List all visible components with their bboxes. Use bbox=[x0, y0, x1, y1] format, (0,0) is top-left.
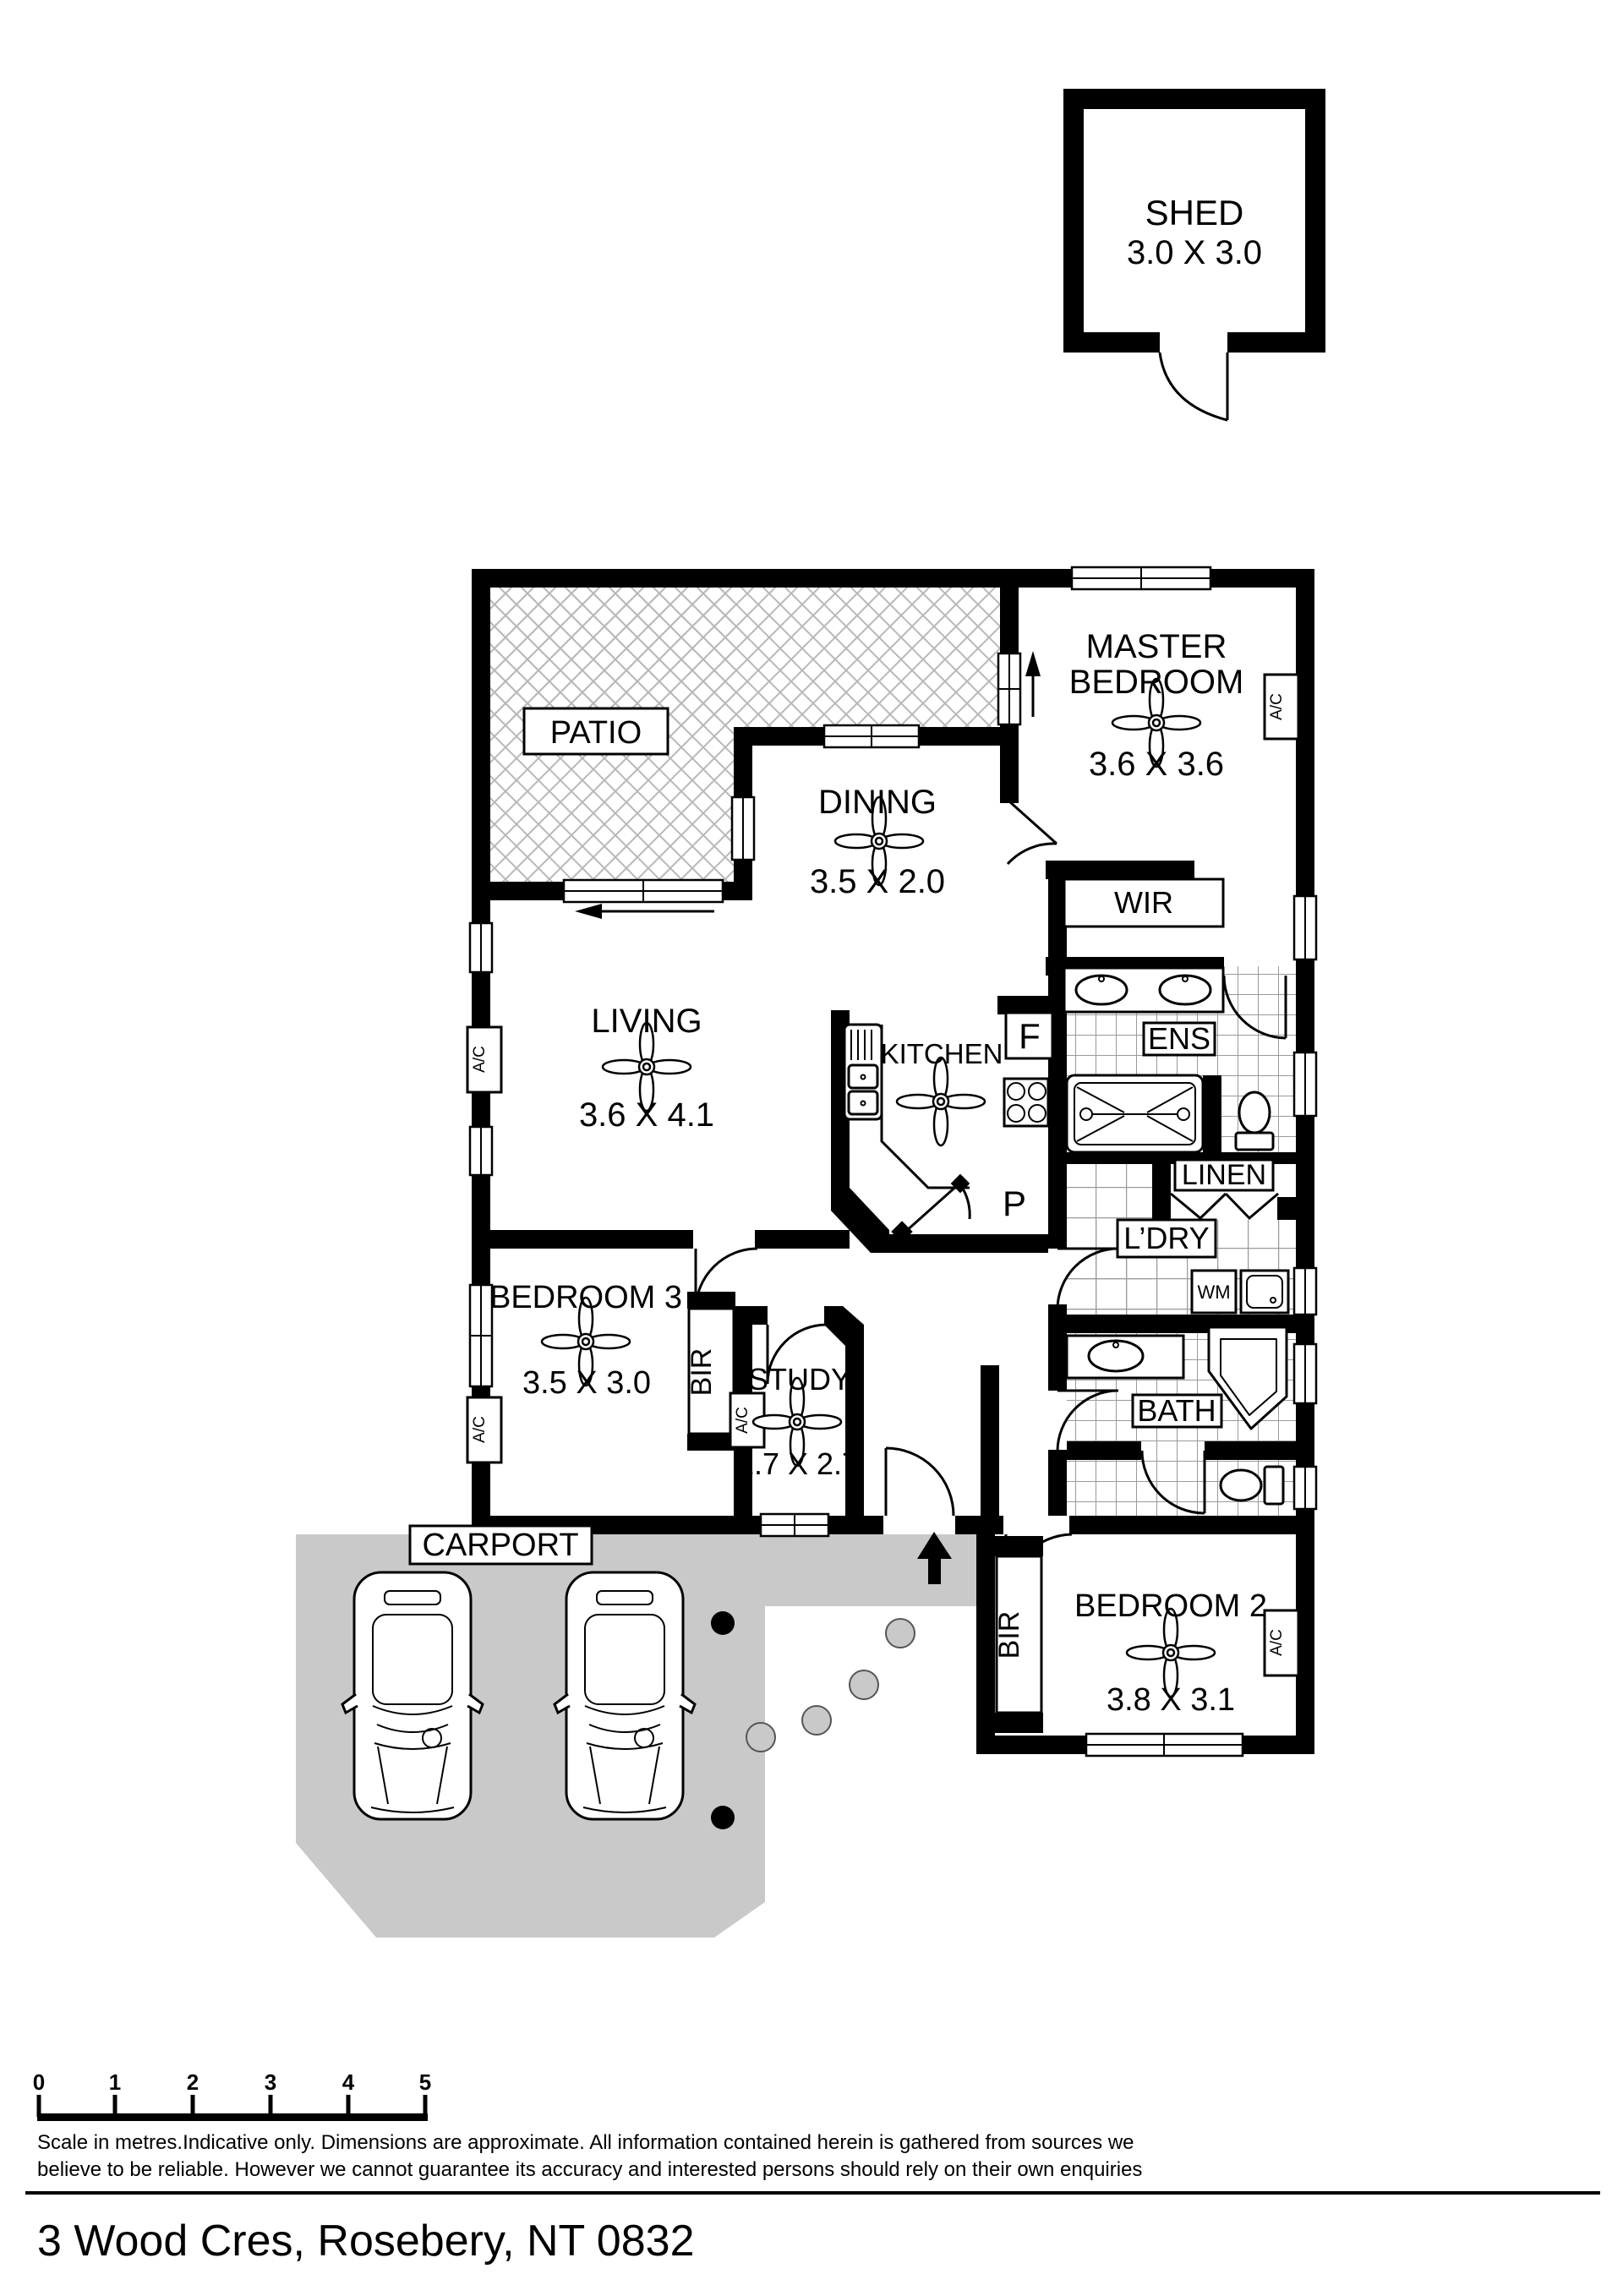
entry-door bbox=[886, 1448, 954, 1516]
ens-window bbox=[1294, 1052, 1316, 1116]
ac-label: A/C bbox=[471, 1416, 489, 1443]
bedroom3-dims: 3.5 X 3.0 bbox=[522, 1365, 651, 1401]
scale-tick-1: 1 bbox=[109, 2069, 121, 2095]
entry-path bbox=[739, 1534, 979, 1606]
address: 3 Wood Cres, Rosebery, NT 0832 bbox=[37, 2217, 695, 2266]
living-label: LIVING bbox=[591, 1003, 702, 1040]
ac-label: A/C bbox=[471, 1046, 489, 1073]
scale-tick-5: 5 bbox=[419, 2069, 431, 2095]
carport-label-box: CARPORT bbox=[410, 1526, 592, 1564]
stepping-stone bbox=[886, 1619, 915, 1648]
wir-label: WIR bbox=[1114, 885, 1173, 920]
master-label-1: MASTER bbox=[1086, 628, 1227, 665]
scale-bar: 0 1 2 3 4 5 bbox=[33, 2069, 431, 2121]
master-slider-arrow bbox=[1025, 651, 1041, 717]
shed-label: SHED bbox=[1145, 193, 1244, 232]
ens-label-box: ENS bbox=[1144, 1021, 1215, 1056]
footer: Scale in metres.Indicative only. Dimensi… bbox=[25, 2131, 1600, 2266]
laundry-tub bbox=[1241, 1271, 1288, 1313]
bedroom3-label: BEDROOM 3 bbox=[489, 1280, 682, 1315]
patio-step-window bbox=[732, 797, 754, 860]
disclaimer-line2: believe to be reliable. However we canno… bbox=[37, 2158, 1142, 2181]
living-dims: 3.6 X 4.1 bbox=[579, 1096, 714, 1134]
bedroom2-window bbox=[1086, 1734, 1243, 1756]
fan-icon bbox=[897, 1058, 985, 1145]
master-east-window bbox=[1294, 896, 1316, 959]
linen-label-box: LINEN bbox=[1175, 1159, 1273, 1191]
ens-toilet bbox=[1236, 1092, 1273, 1150]
carport-label: CARPORT bbox=[422, 1528, 578, 1563]
study-window bbox=[761, 1514, 828, 1536]
study-label: STUDY bbox=[748, 1362, 851, 1397]
master-door bbox=[1008, 801, 1057, 864]
carport-post bbox=[711, 1806, 735, 1829]
scale-tick-2: 2 bbox=[187, 2069, 199, 2095]
master-label-2: BEDROOM bbox=[1069, 664, 1244, 701]
pantry-label: P bbox=[1003, 1184, 1026, 1223]
scale-tick-3: 3 bbox=[265, 2069, 276, 2095]
bath-label: BATH bbox=[1137, 1393, 1216, 1428]
shed: SHED 3.0 X 3.0 bbox=[1063, 89, 1325, 420]
bedroom2-bir-label: BIR bbox=[993, 1611, 1025, 1659]
stepping-stone bbox=[746, 1723, 775, 1752]
linen-bifold-doors bbox=[1171, 1194, 1278, 1218]
laundry-window bbox=[1294, 1268, 1316, 1315]
divider-rule bbox=[25, 2191, 1600, 2195]
bedroom3-bir-label: BIR bbox=[686, 1348, 718, 1397]
master-north-window bbox=[1072, 567, 1210, 589]
pantry-door bbox=[891, 1174, 970, 1243]
dining-dims: 3.5 X 2.0 bbox=[810, 863, 945, 900]
ens-vanity bbox=[1064, 968, 1223, 1012]
shed-door bbox=[1160, 353, 1227, 420]
laundry-label: L’DRY bbox=[1123, 1221, 1209, 1255]
patio-label-box: PATIO bbox=[524, 708, 668, 754]
living-south-window bbox=[470, 1127, 492, 1175]
fridge-label: F bbox=[1019, 1016, 1041, 1056]
living-north-window bbox=[470, 923, 492, 972]
dining-window bbox=[824, 725, 919, 747]
study-dims: 1.7 X 2.7 bbox=[737, 1446, 859, 1481]
kitchen-label: KITCHEN bbox=[881, 1038, 1003, 1069]
patio-sliding-door bbox=[564, 880, 723, 902]
linen-label: LINEN bbox=[1182, 1159, 1266, 1191]
master-dims: 3.6 X 3.6 bbox=[1089, 746, 1224, 783]
bedroom2-dims: 3.8 X 3.1 bbox=[1107, 1682, 1235, 1718]
bath-vanity bbox=[1067, 1336, 1183, 1378]
patio-slider-arrow bbox=[575, 904, 714, 919]
patio-label: PATIO bbox=[550, 715, 642, 751]
bath-window bbox=[1294, 1344, 1316, 1403]
floorplan-page: SHED 3.0 X 3.0 bbox=[0, 0, 1623, 2296]
stove-cooktop bbox=[1004, 1079, 1048, 1126]
wc-window bbox=[1294, 1467, 1316, 1509]
ac-label: A/C bbox=[1268, 1629, 1286, 1656]
stepping-stone bbox=[850, 1670, 878, 1699]
bedroom2-label: BEDROOM 2 bbox=[1074, 1588, 1267, 1624]
ens-bath bbox=[1067, 1075, 1203, 1152]
ens-label: ENS bbox=[1148, 1021, 1210, 1056]
carport-post bbox=[711, 1611, 735, 1635]
disclaimer-line1: Scale in metres.Indicative only. Dimensi… bbox=[37, 2131, 1134, 2154]
bath-label-box: BATH bbox=[1133, 1393, 1221, 1428]
laundry-label-box: L’DRY bbox=[1118, 1220, 1216, 1257]
shed-dims: 3.0 X 3.0 bbox=[1127, 234, 1262, 271]
ac-label: A/C bbox=[1268, 693, 1286, 720]
car bbox=[342, 1572, 483, 1819]
wc-toilet bbox=[1221, 1467, 1283, 1504]
master-patio-slider bbox=[998, 653, 1020, 724]
dining-label: DINING bbox=[818, 784, 937, 821]
carport bbox=[296, 1534, 979, 1938]
washing-machine-label: WM bbox=[1197, 1282, 1230, 1303]
scale-tick-4: 4 bbox=[342, 2069, 355, 2095]
stepping-stone bbox=[802, 1706, 831, 1735]
ac-label: A/C bbox=[734, 1407, 751, 1434]
car bbox=[555, 1572, 695, 1819]
scale-tick-0: 0 bbox=[33, 2069, 45, 2095]
